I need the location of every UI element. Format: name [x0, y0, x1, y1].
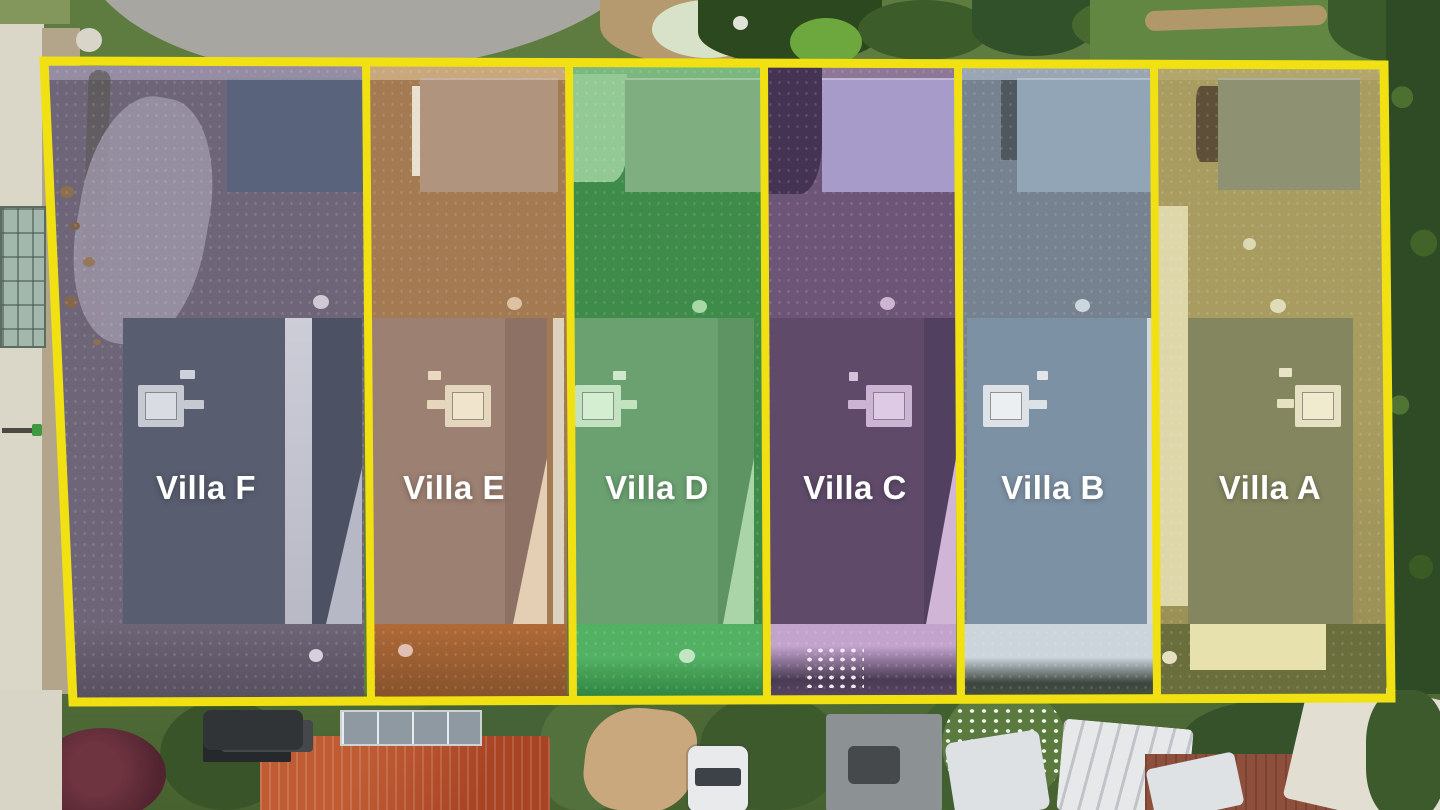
roof-vent — [1279, 368, 1292, 377]
roof-vent — [1037, 371, 1048, 380]
skylight-pane — [452, 392, 484, 420]
plot-villa-a[interactable]: Villa A — [1158, 66, 1386, 698]
skylight-arm — [184, 400, 204, 409]
skylight — [1295, 385, 1341, 427]
sidewalk-corner — [0, 690, 62, 810]
villa-f-label: Villa F — [126, 469, 286, 507]
terrace-and-shrubs — [961, 624, 1153, 698]
roof-wall-strip — [285, 318, 312, 624]
skylight-pane — [1302, 392, 1334, 420]
dark-shrubs — [766, 66, 822, 194]
manhole — [679, 649, 695, 663]
manhole — [507, 297, 522, 310]
plot-villa-b[interactable]: Villa B — [961, 66, 1153, 698]
bush — [1366, 690, 1440, 810]
manhole — [1162, 651, 1177, 664]
skylight-pane — [873, 392, 905, 420]
skylight-pane — [145, 392, 177, 420]
skylight-arm — [1029, 400, 1047, 409]
road — [78, 0, 670, 74]
plot-divider-b-a — [1154, 65, 1157, 701]
survey-stake — [2, 428, 36, 433]
roof-wall-strip — [553, 318, 564, 624]
manhole — [880, 297, 895, 310]
van-windshield — [695, 768, 741, 786]
garden-equipment — [203, 710, 303, 750]
ground-lower — [370, 624, 567, 698]
bush-bright — [790, 18, 862, 66]
solar-panels — [340, 710, 482, 746]
roof-vent — [849, 372, 858, 381]
skylight — [138, 385, 184, 427]
villa-c-label: Villa C — [775, 469, 935, 507]
manhole — [692, 300, 707, 313]
garage-roof — [1218, 78, 1360, 190]
roof-wall-strip — [1147, 318, 1153, 624]
skylight-arm — [427, 400, 445, 409]
lawn-patch — [573, 74, 627, 182]
garage-roof — [227, 78, 363, 192]
manhole — [313, 295, 329, 309]
skylight-arm — [848, 400, 866, 409]
red-roof-tiles — [260, 736, 550, 810]
manhole — [1243, 238, 1256, 250]
greenhouse-frame — [0, 206, 46, 348]
villa-e-label: Villa E — [374, 469, 534, 507]
hedge — [858, 0, 990, 60]
garage-roof — [822, 78, 955, 192]
survey-stake-cap — [32, 424, 42, 436]
skylight-pane — [582, 392, 614, 420]
skylight — [866, 385, 912, 427]
terrace — [1190, 624, 1326, 670]
manhole — [398, 644, 413, 657]
plot-villa-d[interactable]: Villa D — [573, 66, 762, 698]
roof-vent — [613, 371, 626, 380]
villa-b-label: Villa B — [973, 469, 1133, 507]
roof-vent — [428, 371, 441, 380]
stones — [60, 186, 74, 198]
manhole — [1270, 299, 1286, 313]
white-tarp — [944, 729, 1050, 810]
skylight-pane — [990, 392, 1022, 420]
white-flowers — [804, 646, 864, 688]
patio-table — [848, 746, 900, 784]
plot-villa-f[interactable]: Villa F — [44, 66, 364, 698]
skylight — [445, 385, 491, 427]
villa-a-label: Villa A — [1190, 469, 1350, 507]
roof-vent — [180, 370, 195, 379]
grass-corner — [0, 0, 70, 24]
manhole — [309, 649, 323, 662]
aerial-site-photo: Villa F Villa E — [0, 0, 1440, 810]
skylight-arm — [621, 400, 637, 409]
garage-roof — [1017, 78, 1151, 192]
skylight — [983, 385, 1029, 427]
skylight — [575, 385, 621, 427]
manhole — [733, 16, 748, 30]
tree-line — [1386, 0, 1440, 810]
ground-lower — [573, 624, 762, 698]
sidewalk — [0, 0, 44, 810]
garage-roof — [625, 78, 761, 192]
plot-villa-c[interactable]: Villa C — [766, 66, 956, 698]
garage-roof — [420, 78, 558, 192]
manhole — [1075, 299, 1090, 312]
manhole — [76, 28, 102, 52]
plot-villa-e[interactable]: Villa E — [370, 66, 567, 698]
skylight-arm — [1277, 399, 1294, 408]
villa-d-label: Villa D — [577, 469, 737, 507]
